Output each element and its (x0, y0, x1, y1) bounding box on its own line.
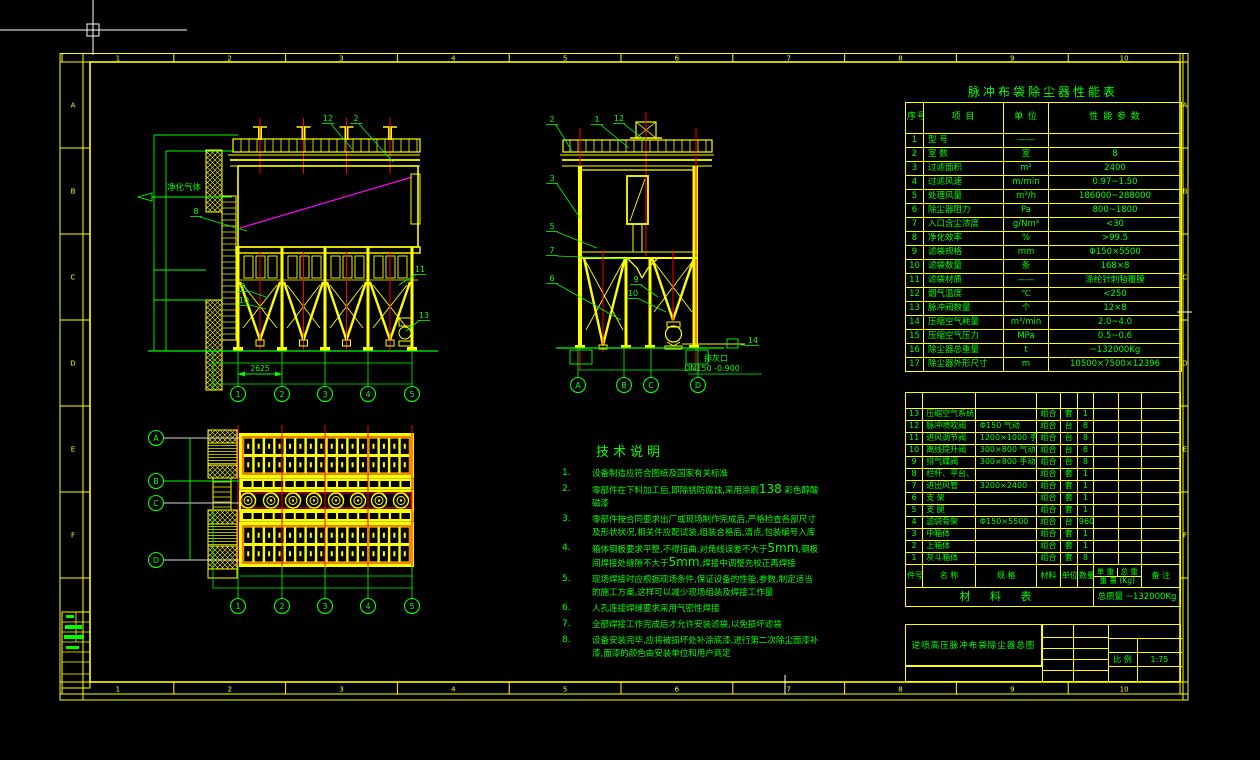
scale-label: 比 例 (1108, 652, 1137, 666)
mat-cell (975, 553, 1037, 565)
perf-cell: 8 (1049, 148, 1182, 162)
zone-number-bottom: 5 (563, 686, 567, 694)
performance-table-title: 脉冲布袋除尘器性能表 (905, 83, 1181, 100)
zone-letter-right: D (1182, 360, 1187, 368)
mat-cell: 组合 (1037, 469, 1060, 481)
zone-letter-right: E (1183, 446, 1187, 454)
material-table-grid: 13压缩空气系统组合套112脉冲喷吹阀Φ150 气动组合台811进风调节阀120… (905, 392, 1181, 607)
mat-cell (1119, 529, 1141, 541)
mat-blank-cell (923, 393, 976, 409)
mat-cell: 组合 (1037, 481, 1060, 493)
perf-header: 性 能 参 数 (1049, 103, 1182, 134)
mat-cell: 套 (1060, 529, 1077, 541)
mat-cell: 组合 (1037, 529, 1060, 541)
front-axis-bubble: 4 (365, 390, 370, 399)
notes-list: 1.设备制造应符合图纸及国家有关标准2.零部件在下料加工后,即除锈防腐蚀,采用涂… (556, 468, 824, 661)
perf-cell: 9 (906, 246, 924, 260)
zone-letter-left: A (71, 102, 76, 110)
perf-row: 17除尘器外形尺寸m10500×7500×12396 (906, 358, 1182, 372)
mat-row: 12脉冲喷吹阀Φ150 气动组合台8 (906, 421, 1181, 433)
perf-cell: 净化效率 (924, 232, 1004, 246)
perf-row: 14压缩空气耗量m³/min2.0~4.0 (906, 316, 1182, 330)
note-text: 设备制造应符合图纸及国家有关标准 (592, 468, 820, 481)
perf-header: 项 目 (924, 103, 1004, 134)
perf-cell: t (1004, 344, 1049, 358)
plan-axis-bubble-left: D (153, 556, 159, 565)
mat-cell: 300×800 手动 (975, 457, 1037, 469)
mat-cell: 1 (1077, 505, 1093, 517)
mat-cell: 台 (1060, 421, 1077, 433)
zone-number-top: 5 (563, 55, 567, 63)
mat-cell (1141, 553, 1180, 565)
perf-row: 11滤袋材质——涤纶针刺毡覆膜 (906, 274, 1182, 288)
mat-cell: 组合 (1037, 433, 1060, 445)
mat-cell: 1 (906, 553, 923, 565)
perf-cell: 10500×7500×12396 (1049, 358, 1182, 372)
perf-cell: 10 (906, 260, 924, 274)
note-text: 全部焊接工作完成后才允许安装滤袋,以免损坏滤袋 (592, 619, 820, 632)
perf-cell: Pa (1004, 204, 1049, 218)
mat-cell (1119, 541, 1141, 553)
mat-blank-cell (1060, 393, 1077, 409)
perf-cell: 12 (906, 288, 924, 302)
note-item: 1.设备制造应符合图纸及国家有关标准 (556, 468, 824, 481)
perf-cell: 0.5~0.6 (1049, 330, 1182, 344)
front-axis-bubble: 2 (279, 390, 284, 399)
part-label: 8 (193, 207, 198, 216)
perf-cell: 室 数 (924, 148, 1004, 162)
part-label: 7 (549, 246, 554, 255)
perf-cell: 11 (906, 274, 924, 288)
mat-header: 规 格 (975, 565, 1037, 588)
perf-row: 5处理风量m³/h186000~288000 (906, 190, 1182, 204)
note-item: 6.人孔连接焊缝要求采用气密性焊接 (556, 603, 824, 616)
mat-cell (1119, 517, 1141, 529)
perf-cell: 186000~288000 (1049, 190, 1182, 204)
mat-blank-cell (1119, 393, 1141, 409)
total-mass: 总质量 ~132000Kg (1094, 588, 1181, 607)
mat-cell (1094, 529, 1119, 541)
mat-cell (1094, 433, 1119, 445)
part-label: 1 (594, 115, 599, 124)
mat-cell: 11 (906, 433, 923, 445)
note-item: 3.零部件按合同要求出厂或现场制作完成后,严格检查各部尺寸及形状状况,相关件应配… (556, 514, 824, 540)
mat-cell: 1 (1077, 529, 1093, 541)
mat-cell (1141, 421, 1180, 433)
perf-row: 12烟气温度℃<250 (906, 288, 1182, 302)
note-number: 1. (556, 468, 592, 481)
mat-blank-cell (975, 393, 1037, 409)
mat-blank-cell (1037, 393, 1060, 409)
zone-number-top: 10 (1120, 55, 1129, 63)
perf-cell: 脉冲阀数量 (924, 302, 1004, 316)
mat-blank-cell (906, 393, 923, 409)
notes-title: 技术说明 (596, 441, 824, 460)
perf-cell: 15 (906, 330, 924, 344)
perf-cell: m² (1004, 162, 1049, 176)
zone-number-top: 3 (339, 55, 343, 63)
zone-number-top: 7 (786, 55, 790, 63)
mat-cell: 套 (1060, 493, 1077, 505)
perf-cell: 滤袋数量 (924, 260, 1004, 274)
mat-cell (975, 505, 1037, 517)
mat-row: 7进出风管3200×2400组合套1 (906, 481, 1181, 493)
perf-cell: 滤袋规格 (924, 246, 1004, 260)
mat-cell: 套 (1060, 469, 1077, 481)
perf-cell: m³/min (1004, 316, 1049, 330)
mat-cell: 压缩空气系统 (923, 409, 976, 421)
perf-cell: 烟气温度 (924, 288, 1004, 302)
mat-cell: 离线提升阀 (923, 445, 976, 457)
mat-cell: 组合 (1037, 409, 1060, 421)
mat-row: 1灰斗箱体组合套8 (906, 553, 1181, 565)
mat-cell (1141, 529, 1180, 541)
perf-cell: m³/h (1004, 190, 1049, 204)
mat-row: 9排气蝶阀300×800 手动组合台8 (906, 457, 1181, 469)
mat-row: 2上箱体组合套1 (906, 541, 1181, 553)
note-number: 8. (556, 635, 592, 661)
mat-row: 10离线提升阀300×800 气动组合台8 (906, 445, 1181, 457)
mat-cell (975, 529, 1037, 541)
part-label: 5 (549, 222, 554, 231)
note-text: 现场焊接时应根据现场条件,保证设备的性能,参数,制定适当的施工方案,这样可以减少… (592, 574, 820, 600)
material-table: 13压缩空气系统组合套112脉冲喷吹阀Φ150 气动组合台811进风调节阀120… (905, 392, 1181, 607)
perf-row: 1型 号—— (906, 134, 1182, 148)
mat-cell: 3 (906, 529, 923, 541)
note-text: 零部件在下料加工后,即除锈防腐蚀,采用涂刷138 彩色醇酸磁漆 (592, 484, 820, 511)
zone-number-bottom: 3 (339, 686, 343, 694)
mat-cell (1119, 505, 1141, 517)
plan-axis-bubble-bottom: 1 (235, 602, 240, 611)
side-axis-bubble: C (648, 381, 654, 390)
part-label: 2 (353, 114, 358, 123)
mat-header: 单位 (1060, 565, 1077, 588)
perf-cell: 5 (906, 190, 924, 204)
mat-cell: 中箱体 (923, 529, 976, 541)
mat-cell (1119, 469, 1141, 481)
mat-cell: 套 (1060, 553, 1077, 565)
perf-cell: 2400 (1049, 162, 1182, 176)
mat-cell (1119, 433, 1141, 445)
part-label: 6 (549, 274, 554, 283)
mat-header: 材料 (1037, 565, 1060, 588)
zone-letter-right: A (1183, 102, 1188, 110)
part-label: 11 (415, 265, 425, 274)
mat-cell: 8 (906, 469, 923, 481)
perf-cell: m (1004, 358, 1049, 372)
mat-cell: 组合 (1037, 421, 1060, 433)
mat-row: 8栏杆、平台、扶梯组合套1 (906, 469, 1181, 481)
mat-cell: 5 (906, 505, 923, 517)
part-label: 10 (628, 289, 638, 298)
mat-cell (1119, 421, 1141, 433)
mat-cell: 台 (1060, 445, 1077, 457)
mat-cell: 960 (1077, 517, 1093, 529)
performance-table: 脉冲布袋除尘器性能表 序号项 目单 位性 能 参 数 1型 号——2室 数室83… (905, 83, 1182, 372)
mat-blank-cell (1094, 393, 1119, 409)
material-table-title: 材 料 表 (906, 588, 1094, 607)
zone-number-top: 2 (227, 55, 231, 63)
note-text: 设备安装完毕,应将被损坏处补涂底漆,进行第二次除尘面漆补漆,面漆的颜色由安装单位… (592, 635, 820, 661)
mat-header: 数量 (1077, 565, 1093, 588)
perf-cell: 0.97~1.50 (1049, 176, 1182, 190)
zone-letter-left: D (70, 360, 75, 368)
perf-cell: 8 (906, 232, 924, 246)
part-label: 9 (633, 275, 638, 284)
mat-row: 5支 腿组合套1 (906, 505, 1181, 517)
zone-number-bottom: 1 (116, 686, 120, 694)
mat-cell: 排气蝶阀 (923, 457, 976, 469)
mat-cell (1141, 493, 1180, 505)
perf-cell: 3 (906, 162, 924, 176)
mat-cell: 套 (1060, 505, 1077, 517)
mat-cell: 8 (1077, 445, 1093, 457)
mat-cell (1141, 469, 1180, 481)
perf-row: 3过滤面积m²2400 (906, 162, 1182, 176)
mat-cell (1094, 457, 1119, 469)
note-text: 零部件按合同要求出厂或现场制作完成后,严格检查各部尺寸及形状状况,相关件应配试装… (592, 514, 820, 540)
note-item: 2.零部件在下料加工后,即除锈防腐蚀,采用涂刷138 彩色醇酸磁漆 (556, 484, 824, 511)
perf-cell: —— (1004, 134, 1049, 148)
crosshair-cursor (0, 0, 187, 55)
mat-row: 13压缩空气系统组合套1 (906, 409, 1181, 421)
perf-cell: 17 (906, 358, 924, 372)
zone-number-top: 9 (1010, 55, 1014, 63)
note-item: 7.全部焊接工作完成后才允许安装滤袋,以免损坏滤袋 (556, 619, 824, 632)
mat-cell: 1 (1077, 493, 1093, 505)
mat-cell: 上箱体 (923, 541, 976, 553)
plan-axis-bubble-left: B (153, 477, 159, 486)
side-elevation-view: 排灰口DN150 -0.900ABCD2112357691014 (546, 112, 762, 393)
cad-canvas: 1122334455667788991010AABBCCDDEEFF 净化气体2… (0, 0, 1260, 760)
mat-cell (1119, 409, 1141, 421)
front-axis-bubble: 3 (322, 390, 327, 399)
part-label: 2 (549, 115, 554, 124)
perf-row: 2室 数室8 (906, 148, 1182, 162)
mat-cell: 7 (906, 481, 923, 493)
mat-cell: 支 架 (923, 493, 976, 505)
perf-cell: ℃ (1004, 288, 1049, 302)
note-text: 箱体钢板要求平整,不得扭曲,对角线误差不大于5mm,钢板间焊接处缝隙不大于5mm… (592, 543, 820, 571)
mat-cell (1094, 493, 1119, 505)
mat-cell (1094, 553, 1119, 565)
mat-cell (1141, 445, 1180, 457)
zone-letter-left: C (71, 274, 76, 282)
perf-cell: 7 (906, 218, 924, 232)
perf-cell: 滤袋材质 (924, 274, 1004, 288)
mat-cell: 套 (1060, 481, 1077, 493)
outlet-note-2: DN150 -0.900 (684, 364, 740, 373)
perf-cell: 16 (906, 344, 924, 358)
mat-row: 4滤袋骨架Φ150×5500组合台960 (906, 517, 1181, 529)
perf-cell: mm (1004, 246, 1049, 260)
perf-cell: 168×8 (1049, 260, 1182, 274)
mat-cell: 组合 (1037, 457, 1060, 469)
zone-number-top: 1 (116, 55, 120, 63)
zone-number-bottom: 9 (1010, 686, 1014, 694)
mat-cell (1119, 493, 1141, 505)
mat-cell (1094, 445, 1119, 457)
perf-cell: % (1004, 232, 1049, 246)
outlet-note-1: 排灰口 (704, 353, 728, 363)
mat-cell (1094, 505, 1119, 517)
mat-header-weight: 单 重总 重重 量 (Kg) (1094, 565, 1142, 588)
perf-cell: 条 (1004, 260, 1049, 274)
mat-cell: 组合 (1037, 493, 1060, 505)
mat-cell: 进出风管 (923, 481, 976, 493)
performance-table-grid: 序号项 目单 位性 能 参 数 1型 号——2室 数室83过滤面积m²24004… (905, 102, 1182, 372)
zone-letter-left: E (71, 446, 75, 454)
note-number: 4. (556, 543, 592, 571)
mat-cell: 滤袋骨架 (923, 517, 976, 529)
mat-cell: 10 (906, 445, 923, 457)
mat-cell (1094, 421, 1119, 433)
mat-cell: 进风调节阀 (923, 433, 976, 445)
mat-blank-cell (1141, 393, 1180, 409)
perf-row: 15压缩空气压力MPa0.5~0.6 (906, 330, 1182, 344)
mat-cell (1094, 481, 1119, 493)
perf-cell: ~132000Kg (1049, 344, 1182, 358)
plan-axis-bubble-left: A (153, 434, 159, 443)
zone-number-top: 8 (898, 55, 902, 63)
mat-cell (1094, 541, 1119, 553)
mat-cell: 套 (1060, 409, 1077, 421)
mat-cell: 台 (1060, 517, 1077, 529)
mat-cell (1094, 469, 1119, 481)
mat-cell: 8 (1077, 553, 1093, 565)
mat-cell: 1 (1077, 409, 1093, 421)
note-text: 人孔连接焊缝要求采用气密性焊接 (592, 603, 820, 616)
mat-cell (1141, 505, 1180, 517)
mat-cell (1141, 541, 1180, 553)
mat-cell: 6 (906, 493, 923, 505)
front-elevation-view: 净化气体26251234512289101113 (138, 114, 438, 402)
mat-cell (1141, 457, 1180, 469)
perf-cell: 1 (906, 134, 924, 148)
front-inlet-label: 净化气体 (167, 182, 202, 193)
mat-cell: Φ150×5500 (975, 517, 1037, 529)
perf-cell: 13 (906, 302, 924, 316)
zone-number-bottom: 10 (1120, 686, 1129, 694)
mat-cell (1119, 481, 1141, 493)
mat-cell (975, 493, 1037, 505)
zone-letter-right: F (1183, 532, 1187, 540)
front-axis-bubble: 5 (409, 390, 414, 399)
perf-cell: —— (1004, 274, 1049, 288)
perf-cell: <30 (1049, 218, 1182, 232)
perf-cell: 个 (1004, 302, 1049, 316)
plan-axis-bubble-bottom: 2 (279, 602, 284, 611)
perf-cell: 6 (906, 204, 924, 218)
mat-cell (975, 541, 1037, 553)
note-number: 6. (556, 603, 592, 616)
mat-cell: 组合 (1037, 445, 1060, 457)
zone-letter-right: C (1183, 274, 1188, 282)
perf-cell: 过滤风速 (924, 176, 1004, 190)
mat-cell (1119, 445, 1141, 457)
note-item: 8.设备安装完毕,应将被损坏处补涂底漆,进行第二次除尘面漆补漆,面漆的颜色由安装… (556, 635, 824, 661)
mat-cell: 1 (1077, 541, 1093, 553)
mat-cell: 脉冲喷吹阀 (923, 421, 976, 433)
mat-cell: 12 (906, 421, 923, 433)
perf-cell: 过滤面积 (924, 162, 1004, 176)
plan-axis-bubble-bottom: 3 (322, 602, 327, 611)
mat-cell: 1200×1000 手动 (975, 433, 1037, 445)
mat-cell (1141, 433, 1180, 445)
perf-row: 9滤袋规格mmΦ150×5500 (906, 246, 1182, 260)
mat-cell: 8 (1077, 433, 1093, 445)
plan-axis-bubble-left: C (153, 499, 159, 508)
note-number: 5. (556, 574, 592, 600)
perf-cell: 入口含尘浓度 (924, 218, 1004, 232)
mat-cell: 灰斗箱体 (923, 553, 976, 565)
part-label: 9 (240, 282, 245, 291)
perf-cell: 涤纶针刺毡覆膜 (1049, 274, 1182, 288)
scale-value: 1:75 (1137, 652, 1182, 666)
perf-cell (1049, 134, 1182, 148)
perf-cell: 除尘器外形尺寸 (924, 358, 1004, 372)
perf-cell: <250 (1049, 288, 1182, 302)
mat-cell (975, 409, 1037, 421)
side-axis-bubble: D (695, 381, 701, 390)
part-label: 14 (748, 336, 758, 345)
plan-view: ABCD12345 (149, 425, 420, 614)
perf-row: 13脉冲阀数量个12×8 (906, 302, 1182, 316)
zone-number-bottom: 8 (898, 686, 902, 694)
mat-cell: 13 (906, 409, 923, 421)
perf-cell: 型 号 (924, 134, 1004, 148)
note-item: 4.箱体钢板要求平整,不得扭曲,对角线误差不大于5mm,钢板间焊接处缝隙不大于5… (556, 543, 824, 571)
mat-cell (1094, 517, 1119, 529)
zone-number-bottom: 2 (227, 686, 231, 694)
part-label: 12 (323, 114, 333, 123)
mat-cell (975, 469, 1037, 481)
mat-cell: 组合 (1037, 517, 1060, 529)
note-number: 3. (556, 514, 592, 540)
mat-header: 名 称 (923, 565, 976, 588)
drawing-title: 逆喷高压脉冲布袋除尘器总图 (906, 625, 1042, 666)
title-block: 逆喷高压脉冲布袋除尘器总图 比 例 1:75 (905, 624, 1181, 682)
perf-cell: 14 (906, 316, 924, 330)
mat-cell: 套 (1060, 541, 1077, 553)
perf-cell: 800~1800 (1049, 204, 1182, 218)
zone-number-bottom: 7 (786, 686, 790, 694)
front-axis-bubble: 1 (235, 390, 240, 399)
mat-cell: 组合 (1037, 505, 1060, 517)
perf-cell: 12×8 (1049, 302, 1182, 316)
part-label: 13 (419, 311, 429, 320)
mat-cell: Φ150 气动 (975, 421, 1037, 433)
perf-row: 7入口含尘浓度g/Nm³<30 (906, 218, 1182, 232)
note-number: 7. (556, 619, 592, 632)
perf-cell: 除尘器总重量 (924, 344, 1004, 358)
mat-cell: 组合 (1037, 553, 1060, 565)
perf-cell: 处理风量 (924, 190, 1004, 204)
mat-cell: 1 (1077, 481, 1093, 493)
mat-header: 件号 (906, 565, 923, 588)
perf-cell: 2 (906, 148, 924, 162)
front-dim-2625: 2625 (250, 364, 269, 373)
part-label: 12 (614, 114, 624, 123)
perf-cell: 室 (1004, 148, 1049, 162)
perf-row: 6除尘器阻力Pa800~1800 (906, 204, 1182, 218)
mat-cell: 8 (1077, 421, 1093, 433)
perf-cell: 压缩空气耗量 (924, 316, 1004, 330)
mat-cell: 2 (906, 541, 923, 553)
mat-cell: 3200×2400 (975, 481, 1037, 493)
perf-header: 单 位 (1004, 103, 1049, 134)
mat-cell: 支 腿 (923, 505, 976, 517)
